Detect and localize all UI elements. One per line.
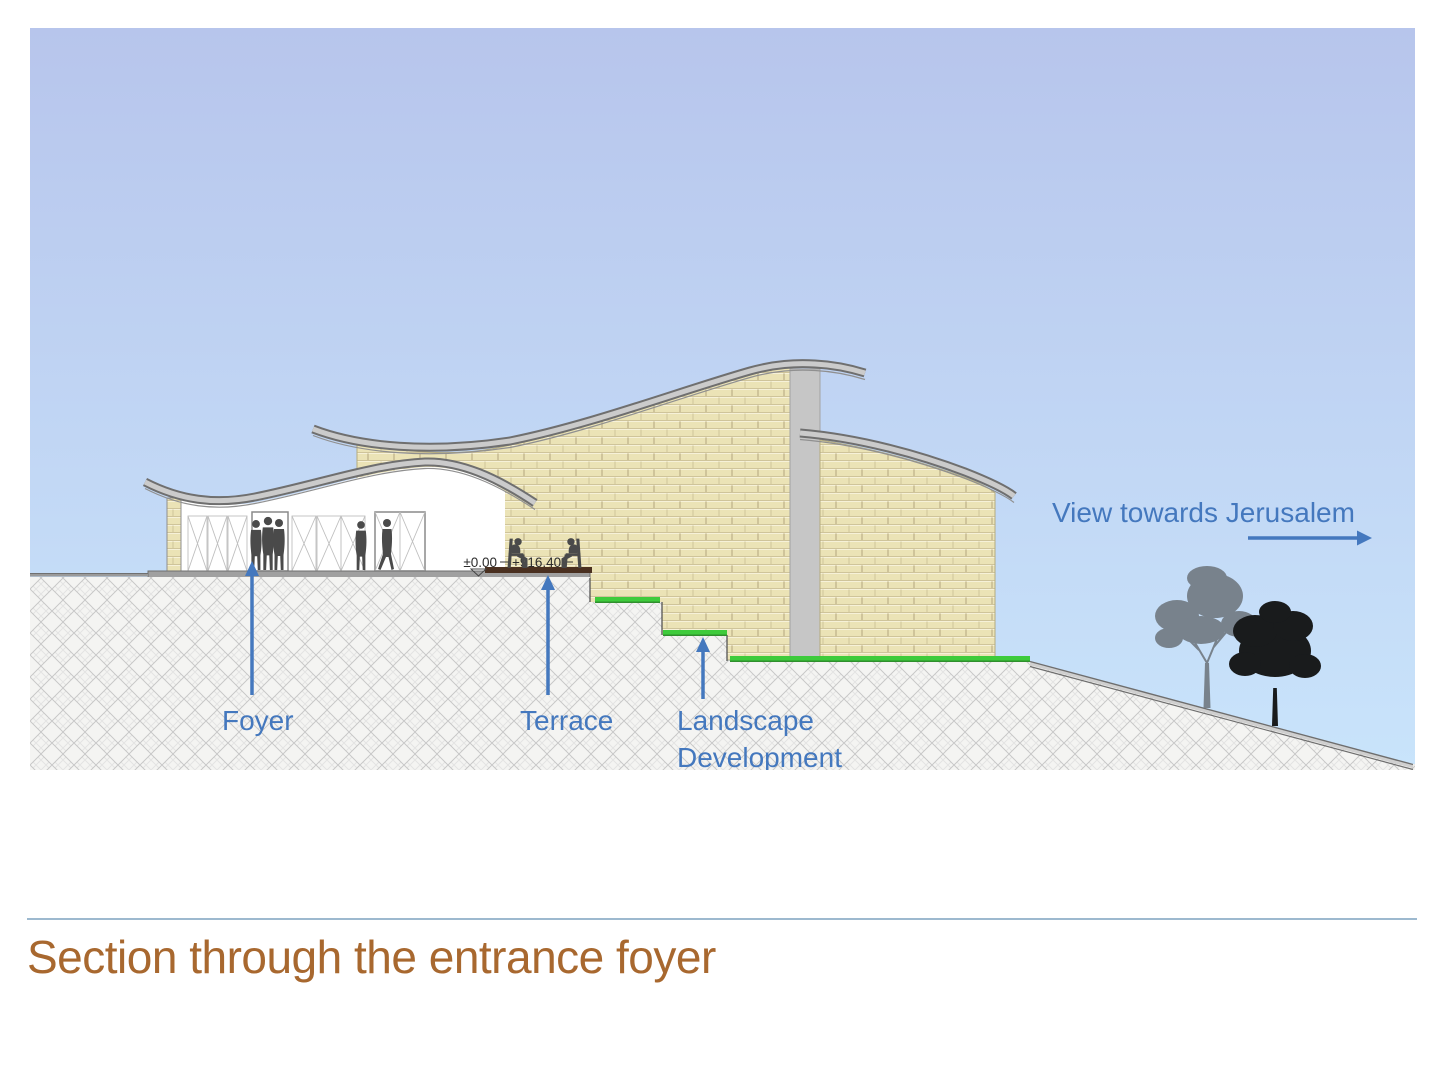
page-title: Section through the entrance foyer xyxy=(27,930,1407,984)
foyer-left-wall xyxy=(167,498,181,577)
datum-elevation-label: ±0.00 xyxy=(463,555,497,570)
gray-column xyxy=(790,369,820,660)
section-drawing: ±0.00 +916.40 xyxy=(30,28,1415,770)
caption-rule xyxy=(27,918,1417,920)
grass-strip xyxy=(730,656,1030,661)
grass-strip xyxy=(663,630,727,635)
slide: ±0.00 +916.40 xyxy=(0,0,1444,1080)
foyer-label: Foyer xyxy=(222,705,294,736)
terrace-label: Terrace xyxy=(520,705,613,736)
landscape-label-line1: Landscape xyxy=(677,705,814,736)
view-direction-label: View towards Jerusalem xyxy=(1052,497,1355,528)
grass-strip xyxy=(595,597,660,602)
landscape-label-line2: Development xyxy=(677,742,842,770)
